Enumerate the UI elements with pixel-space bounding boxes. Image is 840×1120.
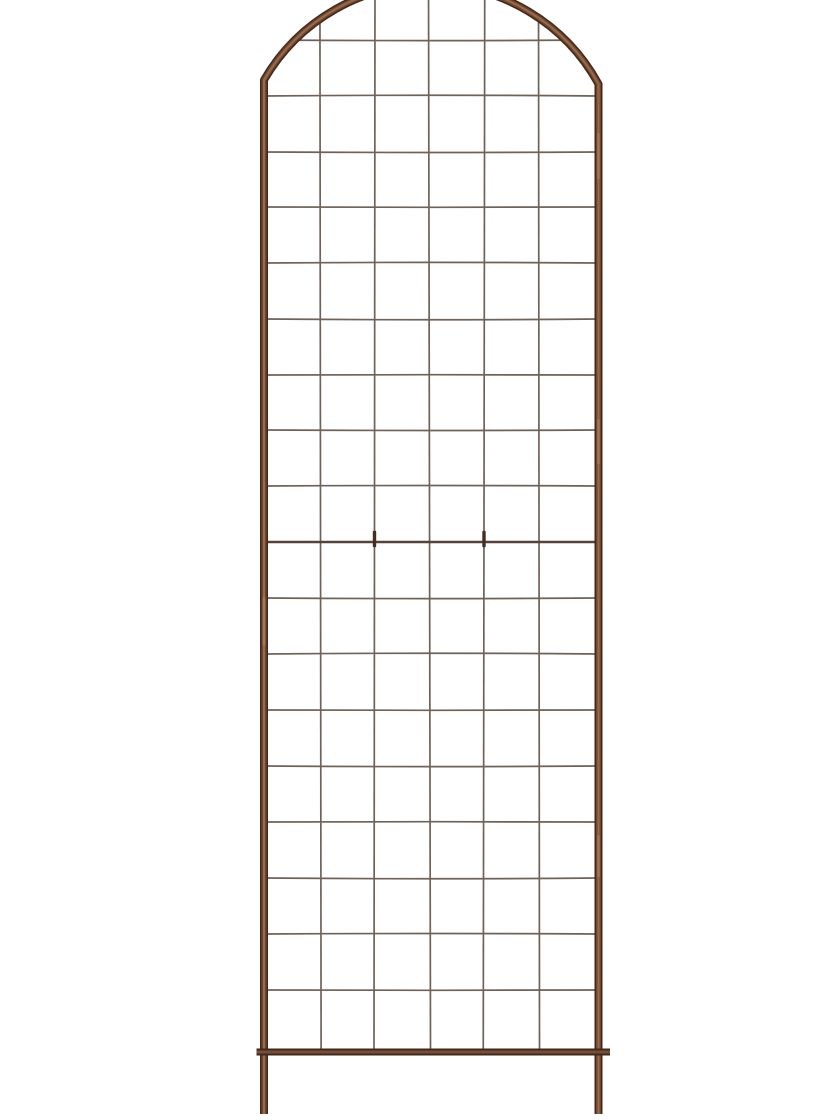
grid-vertical-wire (374, 0, 375, 1052)
grid-horizontal-wire (264, 653, 599, 654)
trellis-illustration (0, 0, 840, 1120)
grid-horizontal-wire (264, 95, 599, 96)
panel-joint-clip (482, 531, 485, 548)
grid-horizontal-wire (264, 319, 599, 320)
grid-horizontal-wire (264, 486, 599, 487)
grid-horizontal-wire (264, 934, 599, 935)
grid-horizontal-wire (264, 152, 599, 153)
grid-horizontal-wire (264, 40, 599, 41)
panel-joint-clip (373, 531, 376, 548)
grid-horizontal-wire (264, 878, 599, 879)
grid-horizontal-wire (264, 598, 599, 599)
grid-vertical-wire (539, 0, 540, 1052)
grid-vertical-wire (320, 0, 321, 1052)
grid-horizontal-wire (264, 262, 599, 263)
grid-horizontal-wire (264, 430, 599, 431)
product-photo (0, 0, 840, 1120)
grid-horizontal-wire (264, 766, 599, 767)
background (0, 0, 840, 1120)
